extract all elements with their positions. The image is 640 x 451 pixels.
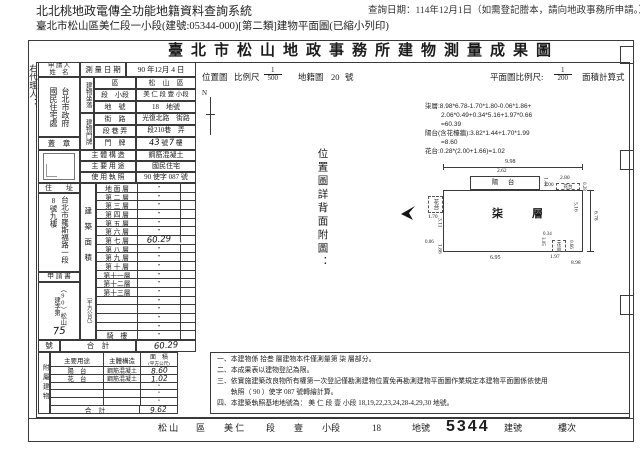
calc-line: =8.60 [441, 138, 532, 147]
table-row: 第 二 層• [97, 193, 195, 202]
floor-value: • [138, 305, 181, 313]
plan-dim-balcony-width: 2.62 [497, 169, 507, 175]
section-label: 段 小段 [94, 89, 136, 101]
residence-address-left: 8號九樓 [50, 196, 58, 228]
footer-floor-label: 樓次 [558, 424, 576, 433]
street-value: 光復北路 街路 [136, 113, 196, 125]
plan-balcony: 陽 台 [470, 176, 540, 190]
table-row: • [51, 383, 177, 391]
footer-lot-unit: 地號 [412, 424, 430, 433]
plate-number-hand: 43 [149, 139, 160, 148]
calc-line: =60.39 [441, 120, 532, 129]
note-line-4: 執照（ 90 ）使字 087 號轉繪計算。 [217, 390, 338, 397]
annex-total-row: 合 計9.62 [51, 406, 177, 413]
footer-divider [28, 418, 634, 419]
cadastral-map-label: 地籍圖 [298, 73, 324, 82]
floor-value: • [138, 271, 181, 279]
cadastral-map-number: 20 [331, 73, 340, 82]
floor-label: 騎 樓 [97, 331, 138, 339]
floor-label [97, 305, 138, 313]
annex-area: • [141, 383, 177, 390]
survey-date-value: 90 年12月 4 日 [126, 62, 196, 77]
floor-value: • [138, 201, 181, 209]
floor-value: • [138, 331, 181, 339]
district-label: 區 [94, 77, 136, 89]
floor-label: 第 六 層 [97, 227, 138, 235]
lane-value: 段210巷 弄 [136, 125, 196, 137]
table-row: 第 十 層• [97, 262, 195, 271]
annex-group-label: 附屬建物 [38, 352, 50, 414]
floor-value: • [138, 288, 181, 296]
area-calculation-block: 柒層:8.98*6.78-1.70*1.80-0.06*1.86+ 2.06*0… [425, 102, 532, 156]
cadastral-map-unit: 號 [345, 73, 354, 82]
plan-dim-898: 8.98 [571, 261, 581, 267]
location-scale-label: 比例尺 [234, 73, 260, 82]
floor-label: 第 七 層 [97, 236, 138, 244]
plan-dim-line-top [443, 167, 583, 168]
floor-label: 第 四 層 [97, 210, 138, 218]
residence-address-cell: 台北市羅斯福路一段 8號九樓 [38, 193, 80, 272]
floor-label: 第 二 層 [97, 193, 138, 201]
plan-dim-tick [587, 251, 594, 252]
table-row: 地 面 層• [97, 184, 195, 193]
location-map-label: 位置圖 [202, 73, 228, 82]
annex-use [51, 390, 104, 397]
floor-value: • [138, 279, 181, 287]
floor-label: 第十二層 [97, 279, 138, 287]
annex-header-area-line1: 面 積 [150, 352, 168, 361]
building-plate-group-label: 建物門牌 [80, 113, 94, 150]
annex-area: 8.60 [141, 367, 177, 374]
plan-flower-left: 花台 [428, 196, 443, 213]
note-line-2: 二、本成果表以建物登記為限。 [217, 368, 313, 375]
annex-structure: 鋼筋混凝土 [104, 375, 141, 382]
plan-scale-denominator: 200 [558, 75, 569, 82]
floor-area-table: 地 面 層• 第 二 層• 第 三 層• 第 四 層• 第 五 層• 第 六 層… [96, 183, 196, 340]
footer-district-unit: 區 [196, 424, 205, 433]
plan-flower-bottom: 花台 [552, 240, 566, 252]
license-label: 使 用 執 照 [80, 172, 136, 183]
plan-dim-305: 3.05 [540, 237, 545, 246]
plan-dim-flower-right-width: 2.80 [560, 176, 570, 182]
application-case-no: （90）松山建字第 [53, 285, 66, 327]
floor-label: 第 八 層 [97, 245, 138, 253]
floor-value: • [138, 193, 181, 201]
plate-lou: 樓 [176, 140, 183, 147]
applicant-name-right: 台北市政府 [61, 87, 69, 127]
table-row: • [97, 297, 195, 306]
usage-label: 主 要 用 途 [80, 161, 136, 172]
plate-floor-hand: 7 [169, 139, 175, 148]
floor-value: • [138, 245, 181, 253]
plan-dim-left-lower: 1.86 [436, 244, 442, 254]
applicant-header: 申 請 人 姓 名 [38, 62, 80, 77]
footer-building-unit: 建號 [504, 424, 522, 433]
application-case-cell: （90）松山建字第 75 [38, 282, 80, 340]
residence-label: 住 址 [38, 183, 80, 193]
plan-dim-right-outer: 6.78 [592, 211, 598, 221]
annex-area: • [141, 390, 177, 397]
plan-dim-tick [587, 190, 594, 191]
doc-title: 臺北市松山地政事務所建物測量成果圖 [168, 44, 559, 59]
table-row: 第 九 層• [97, 253, 195, 262]
footer-lot-number: 18 [372, 424, 381, 433]
annex-total-value: 9.62 [140, 406, 177, 413]
building-location-group-label: 建物坐落 [80, 77, 94, 113]
survey-date-label: 測 量 日 期 [80, 62, 126, 77]
annex-total-hand: 9.62 [150, 404, 167, 414]
applicant-name-left: 國民住宅處 [49, 87, 57, 127]
seal-inner-box [43, 153, 75, 180]
plan-flower-left-label: 花台 [432, 199, 440, 210]
floor-label: 第十一層 [97, 271, 138, 279]
floor-value: • [138, 253, 181, 261]
table-row: 第 八 層• [97, 245, 195, 254]
district-value: 松 山 區 [136, 77, 196, 89]
plan-dim-tick [582, 164, 583, 170]
plan-dim-left-small: 0.06 [425, 240, 434, 245]
table-row: 騎 樓• [97, 331, 195, 339]
floor-label: 第 九 層 [97, 253, 138, 261]
floor-label: 第 十 層 [97, 262, 138, 270]
plate-hao: 號 [161, 140, 168, 147]
floor-label [97, 314, 138, 322]
plan-dim-line-right [590, 190, 591, 252]
plan-flower-bottom-label: 花台 [556, 242, 562, 251]
pencil-mark [46, 164, 57, 177]
building-area-group-cell: 建築面積 （平方公尺） [80, 183, 96, 340]
footer-subsection-no: 壹 [294, 424, 303, 433]
table-row: 第 五 層• [97, 219, 195, 228]
annex-structure [104, 383, 141, 390]
footer-subsection-unit: 小段 [322, 424, 340, 433]
plan-dim-flower-right-depth: 0.28 [581, 182, 586, 191]
floor-label: 第 三 層 [97, 201, 138, 209]
license-value: 90 使字 087 號 [136, 172, 196, 183]
plan-dim-bottom-left: 6.95 [490, 255, 501, 261]
annex-area: 1.02 [141, 375, 177, 382]
annex-header-row: 主要用途 主體構造 面 積 (平方公尺) [51, 353, 177, 367]
area-calc-label: 面積計算式 [582, 73, 625, 82]
note-line-3: 三、依實施建築改良物所有權第一次登記僅勘測建物位置免再勘測建物平面圖作業規定本建… [217, 379, 548, 386]
plan-dim-top: 9.98 [505, 159, 516, 165]
application-hand-no: 75 [52, 327, 65, 338]
floor-value: • [138, 210, 181, 218]
north-letter: N [202, 90, 207, 97]
system-title: 北北桃地政電傳全功能地籍資料查詢系統 [36, 5, 252, 17]
plan-scale-label: 平面圖比例尺: [490, 73, 543, 82]
annex-header-use: 主要用途 [51, 353, 104, 366]
note-line-1: 一、本建物係 拾叁 層建物本件僅測量第 柒 層部分。 [217, 357, 375, 364]
plan-dim-seg: 2.00 [544, 183, 554, 189]
plan-scale-fraction: 1 200 [554, 67, 572, 82]
table-row: • [97, 305, 195, 314]
plan-dim-left-upper: 3.11 [436, 218, 442, 227]
plate-value: 43 號 7 樓 [136, 137, 196, 150]
plan-dim-066: 0.66 [568, 240, 573, 249]
back-note: 位置圖詳背面附圖： [316, 148, 327, 284]
table-row: 第十三層• [97, 288, 195, 297]
applicant-name-cell: 台北市政府 國民住宅處 [38, 77, 80, 137]
building-area-unit: （平方公尺） [85, 286, 91, 334]
location-scale-denominator: 500 [268, 75, 279, 82]
plan-dim-197: 1.97 [550, 255, 560, 261]
floor-value: • [138, 184, 181, 192]
floor-label [97, 297, 138, 305]
annex-header-area: 面 積 (平方公尺) [141, 353, 177, 366]
floor-value: • [138, 219, 181, 227]
table-row: • [97, 323, 195, 332]
structure-label: 主 體 構 造 [80, 150, 136, 161]
table-row: 第十二層• [97, 279, 195, 288]
application-label: 申 請 書 [38, 272, 80, 282]
plan-floor-label: 柒 層 [492, 209, 552, 220]
usage-value: 國民住宅 [136, 161, 196, 172]
floor-value-handwritten: 60.29 [138, 235, 181, 246]
table-row: • [97, 314, 195, 323]
residence-address-right: 台北市羅斯福路一段 [61, 196, 69, 264]
table-row: 花 台鋼筋混凝土1.02 [51, 375, 177, 383]
calc-line: 柒層:8.98*6.78-1.70*1.80-0.06*1.86+ [425, 102, 532, 111]
annex-use [51, 383, 104, 390]
calc-line: 花台:0.28*(2.00+1.66)=1.02 [425, 147, 532, 156]
annex-area-hand: 1.02 [150, 373, 167, 383]
area-total-value: 60.29 [136, 340, 196, 352]
plate-label: 門 牌 [94, 137, 136, 150]
north-line [210, 97, 211, 135]
lot-label: 地 號 [94, 101, 136, 113]
annex-table: 主要用途 主體構造 面 積 (平方公尺) 陽 台鋼筋混凝土8.60 花 台鋼筋混… [50, 352, 178, 414]
lane-label: 段 巷 弄 [94, 125, 136, 137]
seal-label: 蓋 章 [38, 137, 80, 150]
section-value: 美 仁 段 壹 小段 [136, 89, 196, 101]
north-arrow-icon [400, 205, 416, 221]
annex-header-structure: 主體構造 [104, 353, 141, 366]
floor-value: • [138, 314, 181, 322]
calc-line: 2.06*0.49+0.34*5.16+1.97*0.66 [441, 111, 532, 120]
table-row: 第 三 層• [97, 201, 195, 210]
application-suffix: 號 [38, 340, 60, 352]
floor-value: • [138, 323, 181, 331]
table-row: 第 七 層60.29 [97, 236, 195, 245]
footer-section: 美 仁 [224, 424, 244, 433]
footer-building-number: 5344 [446, 419, 490, 435]
plan-dim-tick [443, 164, 444, 170]
north-cross-tick [206, 114, 215, 115]
footer-section-unit: 段 [266, 424, 275, 433]
annex-structure [104, 398, 141, 405]
annex-total-label: 合 計 [51, 406, 140, 413]
document-subtitle: 臺北市松山區美仁段一小段(建號:05344-000)[第二類]建物平面圖(已縮小… [36, 22, 389, 33]
query-date: 查詢日期：114年12月1日（如需登記謄本，請向地政事務所申請。） [368, 7, 640, 17]
annex-structure [104, 390, 141, 397]
floor-label: 第 五 層 [97, 219, 138, 227]
floor-label [97, 323, 138, 331]
location-scale-fraction: 1 500 [264, 67, 282, 82]
area-total-label: 合 計 [60, 340, 136, 352]
building-area-label: 建築面積 [84, 190, 92, 286]
floor-value: • [138, 262, 181, 270]
lot-value: 18 地號 [136, 101, 196, 113]
calc-line: 陽台(含花檯牆):3.82*1.44+1.70*1.99 [425, 129, 532, 138]
plan-dim-right-inner: 5.16 [572, 202, 578, 212]
table-row: 第十一層• [97, 271, 195, 280]
footer-district: 松 山 [158, 424, 178, 433]
registry-printout-page: 北北桃地政電傳全功能地籍資料查詢系統 查詢日期：114年12月1日（如需登記謄本… [0, 0, 640, 451]
seal-box [38, 150, 80, 183]
plan-dim-034: 0.34 [543, 232, 552, 237]
street-label: 街 路 [94, 113, 136, 125]
table-row: 第 四 層• [97, 210, 195, 219]
area-total-hand: 60.29 [154, 341, 179, 351]
applicant-label-2: 姓 名 [50, 70, 69, 76]
annex-use: 花 台 [51, 375, 104, 382]
note-line-5: 四、本建築執照基地地號為： 美 仁 段 壹 小段 18,19,22,23,24,… [217, 401, 454, 408]
floor-label: 地 面 層 [97, 184, 138, 192]
plan-flower-right: 花台 [556, 183, 580, 190]
floor-value: • [138, 297, 181, 305]
table-row: • [51, 390, 177, 398]
floor-label: 第十三層 [97, 288, 138, 296]
structure-value: 鋼筋混凝土 [136, 150, 196, 161]
